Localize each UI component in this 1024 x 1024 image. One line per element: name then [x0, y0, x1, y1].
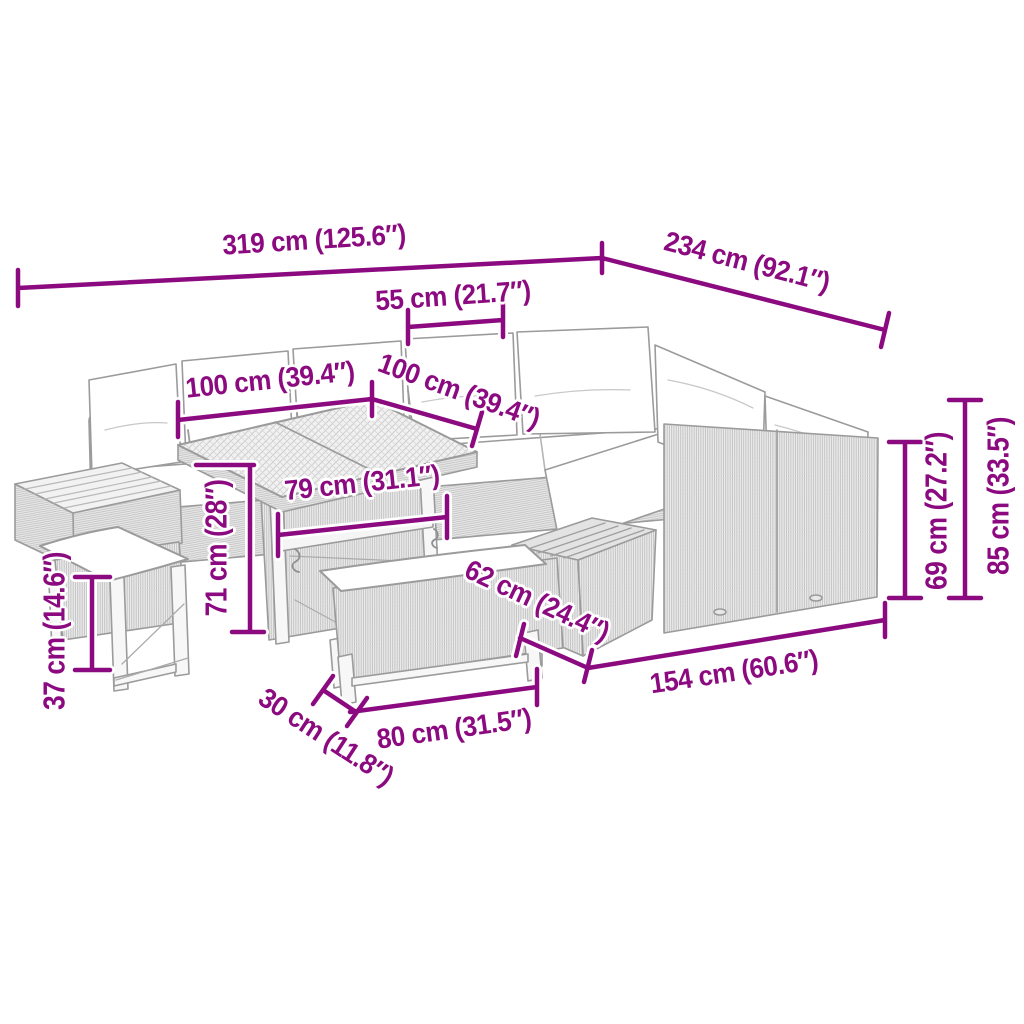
dim-label-stool-height: 37 cm (14.6″): [39, 552, 70, 710]
dim-label-table-height: 71 cm (28″): [201, 480, 232, 617]
dim-line-total-height: [949, 400, 981, 598]
furniture-line-art: [0, 0, 1024, 1024]
dim-line-backrest-height: [889, 442, 921, 598]
dim-label-total-height: 85 cm (33.5″): [983, 417, 1014, 575]
dim-label-backrest-height: 69 cm (27.2″): [921, 432, 952, 590]
dimension-diagram: 319 cm (125.6″) 234 cm (92.1″) 55 cm (21…: [0, 0, 1024, 1024]
